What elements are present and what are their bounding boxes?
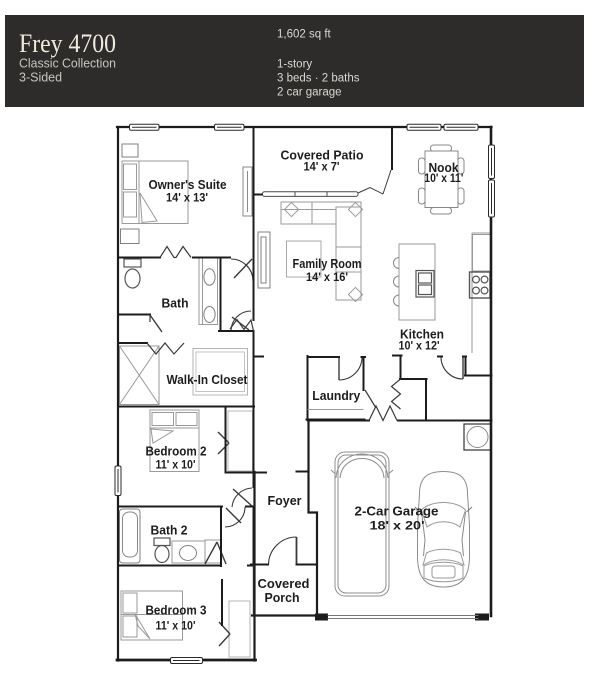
svg-text:10' x 12': 10' x 12' [399, 339, 440, 353]
svg-text:10' x 11': 10' x 11' [424, 171, 463, 185]
svg-text:2-Car Garage: 2-Car Garage [355, 504, 439, 519]
svg-text:1,602 sq ft: 1,602 sq ft [277, 29, 332, 41]
svg-text:11' x 10': 11' x 10' [156, 619, 196, 633]
svg-text:2 car garage: 2 car garage [277, 87, 342, 99]
svg-text:Classic Collection: Classic Collection [19, 57, 116, 71]
svg-text:14' x 7': 14' x 7' [304, 160, 340, 174]
svg-text:Porch: Porch [265, 590, 300, 605]
svg-text:Foyer: Foyer [268, 493, 302, 508]
svg-text:Bath: Bath [162, 296, 189, 311]
svg-text:14' x 13': 14' x 13' [166, 191, 208, 205]
svg-text:Bath 2: Bath 2 [151, 523, 188, 538]
svg-text:18' x 20': 18' x 20' [370, 519, 425, 533]
svg-text:Frey 4700: Frey 4700 [19, 29, 116, 58]
svg-text:Laundry: Laundry [312, 388, 361, 403]
svg-text:Family Room: Family Room [293, 256, 362, 271]
svg-text:Bedroom 3: Bedroom 3 [146, 603, 207, 618]
svg-text:3 beds · 2 baths: 3 beds · 2 baths [277, 73, 360, 85]
svg-text:14' x 16': 14' x 16' [306, 270, 348, 284]
svg-text:Walk-In Closet: Walk-In Closet [167, 372, 249, 387]
svg-text:1-story: 1-story [277, 59, 312, 71]
svg-text:Bedroom 2: Bedroom 2 [146, 444, 207, 459]
svg-text:11' x 10': 11' x 10' [156, 458, 196, 472]
svg-text:3-Sided: 3-Sided [19, 71, 62, 85]
svg-text:Covered: Covered [258, 576, 310, 591]
